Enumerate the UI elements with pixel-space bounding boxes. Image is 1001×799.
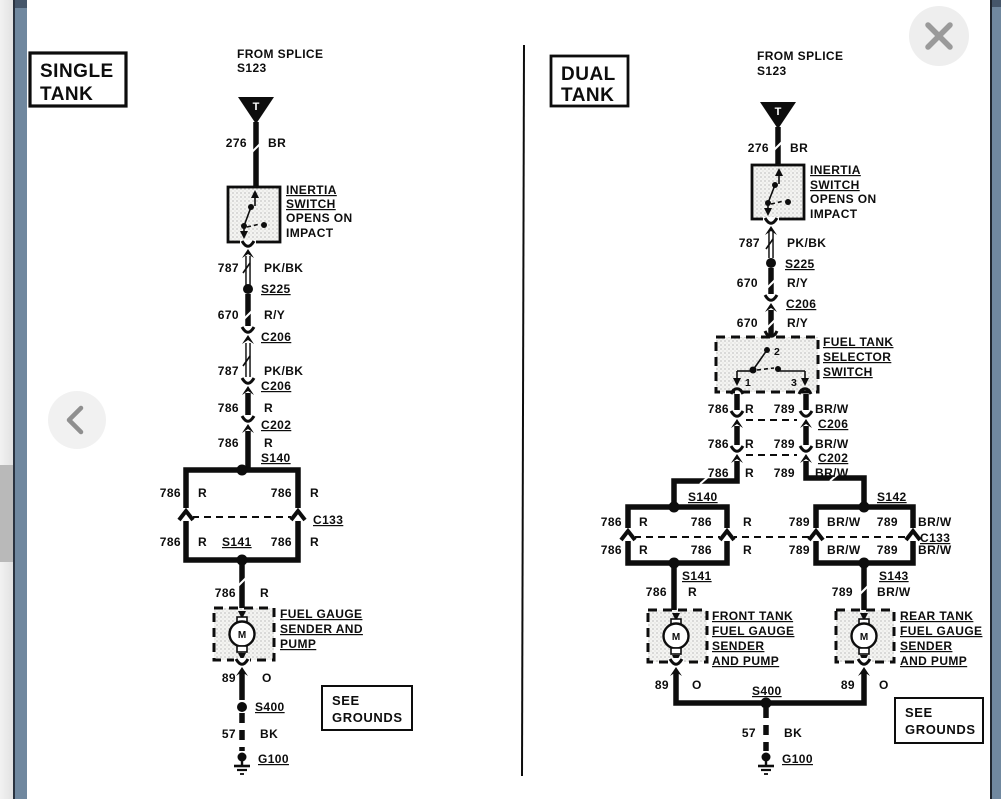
wire-gauge-label: 57 [742, 726, 756, 740]
wire-color-label: R [264, 401, 273, 415]
wire-color-label: O [879, 678, 889, 692]
wire-gauge-label: 670 [218, 308, 239, 322]
close-button[interactable] [909, 6, 969, 66]
image-viewer: SINGLE TANK FROM SPLICE S123 T 276 BR [0, 0, 1001, 799]
wire-gauge-label: 789 [774, 402, 795, 416]
wire-gauge-label: 787 [218, 364, 239, 378]
component-label: FUEL GAUGE [900, 624, 982, 638]
component-label: AND PUMP [900, 654, 967, 668]
wire-gauge-label: 276 [226, 136, 247, 150]
wire-gauge-label: 786 [218, 401, 239, 415]
motor-letter: M [238, 630, 246, 641]
ground-symbol [234, 753, 250, 775]
wire-color-label: R [743, 515, 752, 529]
wire-color-label: PK/BK [787, 236, 826, 250]
component-label: FUEL GAUGE [280, 607, 362, 621]
wire-color-label: R/Y [787, 276, 808, 290]
wire-color-label: O [262, 671, 272, 685]
wire-loop-box [816, 502, 913, 569]
splice-label: S400 [255, 700, 285, 714]
component-label: REAR TANK [900, 609, 973, 623]
wire-color-label: R [639, 543, 648, 557]
wire-color-label: R [198, 535, 207, 549]
splice-junction [243, 284, 253, 294]
inertia-switch-symbol [228, 187, 280, 242]
component-label: FUEL TANK [823, 335, 894, 349]
component-label: OPENS ON [810, 192, 877, 206]
wire-color-label: R [745, 437, 754, 451]
wire-gauge-label: 89 [222, 671, 236, 685]
splice-label: S142 [877, 490, 907, 504]
wire-loop-box [179, 465, 305, 566]
scrollbar-track[interactable] [0, 0, 13, 799]
connector-label: C206 [818, 417, 848, 431]
wire-color-label: BR/W [815, 466, 849, 480]
wire-gauge-label: 786 [708, 402, 729, 416]
wire-gauge-label: 786 [160, 486, 181, 500]
diagram-title: TANK [40, 84, 93, 105]
wire-color-label: BR/W [815, 402, 849, 416]
from-splice-label: S123 [237, 61, 267, 75]
wire-color-label: R [743, 543, 752, 557]
component-label: FRONT TANK [712, 609, 793, 623]
fuel-tank-selector-switch-symbol: 2 1 3 [716, 331, 818, 394]
component-label: INERTIA [810, 163, 861, 177]
splice-label: S140 [688, 490, 718, 504]
connector-label: C206 [261, 330, 291, 344]
wire-color-label: PK/BK [264, 261, 303, 275]
wiring-diagram: SINGLE TANK FROM SPLICE S123 T 276 BR [0, 0, 1001, 799]
wire-color-label: R [639, 515, 648, 529]
connector-symbol [729, 445, 745, 463]
wire-gauge-label: 786 [218, 436, 239, 450]
connector-symbol [240, 415, 256, 433]
wire-gauge-label: 786 [271, 535, 292, 549]
connector-label: C206 [261, 379, 291, 393]
ground-label: G100 [782, 752, 813, 766]
motor-letter: M [860, 632, 868, 643]
wire-color-label: O [692, 678, 702, 692]
wire-color-label: BR/W [827, 515, 861, 529]
close-icon [909, 6, 969, 66]
terminal-label: 3 [791, 377, 797, 389]
fuel-pump-symbol: M [214, 608, 274, 661]
splice-symbol: T [760, 102, 796, 129]
right-panel-bar [990, 0, 1001, 799]
wire-gauge-label: 57 [222, 727, 236, 741]
connector-symbol [240, 377, 256, 395]
wire-gauge-label: 787 [218, 261, 239, 275]
wire-color-label: PK/BK [264, 364, 303, 378]
wire-loop-box [628, 502, 727, 569]
connector-symbol [240, 326, 256, 344]
wire-gauge-label: 786 [271, 486, 292, 500]
connector-label: C202 [818, 451, 848, 465]
wire-color-label: BR [268, 136, 286, 150]
wire-color-label: R [260, 586, 269, 600]
see-grounds-label: SEE [332, 693, 360, 708]
wire-gauge-label: 786 [215, 586, 236, 600]
scrollbar-thumb[interactable] [0, 465, 13, 562]
wire-gauge-label: 789 [774, 466, 795, 480]
wire-gauge-label: 789 [832, 585, 853, 599]
component-label: INERTIA [286, 183, 337, 197]
from-splice-label: S123 [757, 64, 787, 78]
splice-junction [237, 702, 247, 712]
component-label: SENDER [712, 639, 764, 653]
chevron-left-icon [48, 391, 106, 449]
wire-color-label: BR/W [815, 437, 849, 451]
splice-symbol: T [238, 97, 274, 124]
panel-divider [522, 45, 524, 776]
wire-color-label: R [264, 436, 273, 450]
connector-label: C133 [313, 513, 343, 527]
connector-symbol [763, 294, 779, 312]
wire-color-label: BR [790, 141, 808, 155]
component-label: PUMP [280, 637, 316, 651]
component-label: SWITCH [286, 197, 336, 211]
wire-gauge-label: 786 [708, 466, 729, 480]
splice-letter: T [775, 106, 782, 118]
wire-gauge-label: 89 [655, 678, 669, 692]
wire-color-label: BR/W [918, 543, 952, 557]
diagram-title: DUAL [561, 64, 616, 85]
wire-gauge-label: 786 [691, 515, 712, 529]
wire-gauge-label: 786 [601, 543, 622, 557]
connector-symbol [798, 445, 814, 463]
wire-gauge-label: 789 [789, 515, 810, 529]
component-label: SENDER AND [280, 622, 363, 636]
component-label: IMPACT [286, 226, 334, 240]
wire-color-label: BR/W [918, 515, 952, 529]
component-label: AND PUMP [712, 654, 779, 668]
component-label: SENDER [900, 639, 952, 653]
wire-gauge-label: 786 [708, 437, 729, 451]
component-label: SWITCH [823, 365, 873, 379]
see-grounds-label: GROUNDS [332, 710, 403, 725]
component-label: FUEL GAUGE [712, 624, 794, 638]
wire-gauge-label: 786 [160, 535, 181, 549]
see-grounds-label: SEE [905, 705, 933, 720]
wire-color-label: BK [260, 727, 278, 741]
wire-color-label: R [310, 535, 319, 549]
from-splice-label: FROM SPLICE [237, 47, 323, 61]
connector-label: C202 [261, 418, 291, 432]
component-label: IMPACT [810, 207, 858, 221]
inertia-switch-symbol [752, 165, 804, 219]
wire-color-label: R [745, 402, 754, 416]
wire-color-label: R [688, 585, 697, 599]
connector-symbol [240, 240, 256, 258]
motor-letter: M [672, 632, 680, 643]
splice-label: S141 [222, 535, 252, 549]
terminal-label: 2 [774, 346, 780, 358]
diagram-title: TANK [561, 85, 614, 106]
wire-gauge-label: 670 [737, 276, 758, 290]
splice-letter: T [253, 101, 260, 113]
connector-label: C206 [786, 297, 816, 311]
connector-symbol [798, 410, 814, 428]
wire-color-label: R [745, 466, 754, 480]
dual-tank-diagram: DUAL TANK FROM SPLICE S123 T 276 BR [551, 49, 983, 774]
wire-gauge-label: 789 [774, 437, 795, 451]
from-splice-label: FROM SPLICE [757, 49, 843, 63]
splice-label: S143 [879, 569, 909, 583]
component-label: SELECTOR [823, 350, 891, 364]
component-label: SWITCH [810, 178, 860, 192]
wire-color-label: BR/W [827, 543, 861, 557]
wire-gauge-label: 789 [877, 543, 898, 557]
terminal-label: 1 [745, 377, 751, 389]
wire-color-label: R [310, 486, 319, 500]
splice-label: S141 [682, 569, 712, 583]
connector-symbol [729, 410, 745, 428]
component-label: OPENS ON [286, 211, 353, 225]
previous-image-button[interactable] [48, 391, 106, 449]
wire-gauge-label: 670 [737, 316, 758, 330]
wire-gauge-label: 789 [789, 543, 810, 557]
splice-label: S400 [752, 684, 782, 698]
see-grounds-label: GROUNDS [905, 722, 976, 737]
wire-gauge-label: 786 [601, 515, 622, 529]
ground-label: G100 [258, 752, 289, 766]
wire-gauge-label: 787 [739, 236, 760, 250]
splice-junction [761, 698, 772, 709]
ground-symbol [758, 753, 774, 775]
wire-gauge-label: 786 [691, 543, 712, 557]
wire-gauge-label: 789 [877, 515, 898, 529]
splice-junction [766, 258, 776, 268]
rear-fuel-pump-symbol: M [836, 610, 894, 663]
front-fuel-pump-symbol: M [648, 610, 707, 663]
splice-label: S225 [261, 282, 291, 296]
diagram-title: SINGLE [40, 61, 114, 82]
wire-color-label: BR/W [877, 585, 911, 599]
left-panel-bar [13, 0, 27, 799]
wire-gauge-label: 89 [841, 678, 855, 692]
wire-color-label: R [198, 486, 207, 500]
wire-gauge-label: 786 [646, 585, 667, 599]
wire-color-label: R/Y [787, 316, 808, 330]
wire-color-label: BK [784, 726, 802, 740]
splice-label: S225 [785, 257, 815, 271]
splice-label: S140 [261, 451, 291, 465]
wire-gauge-label: 276 [748, 141, 769, 155]
wire-color-label: R/Y [264, 308, 285, 322]
